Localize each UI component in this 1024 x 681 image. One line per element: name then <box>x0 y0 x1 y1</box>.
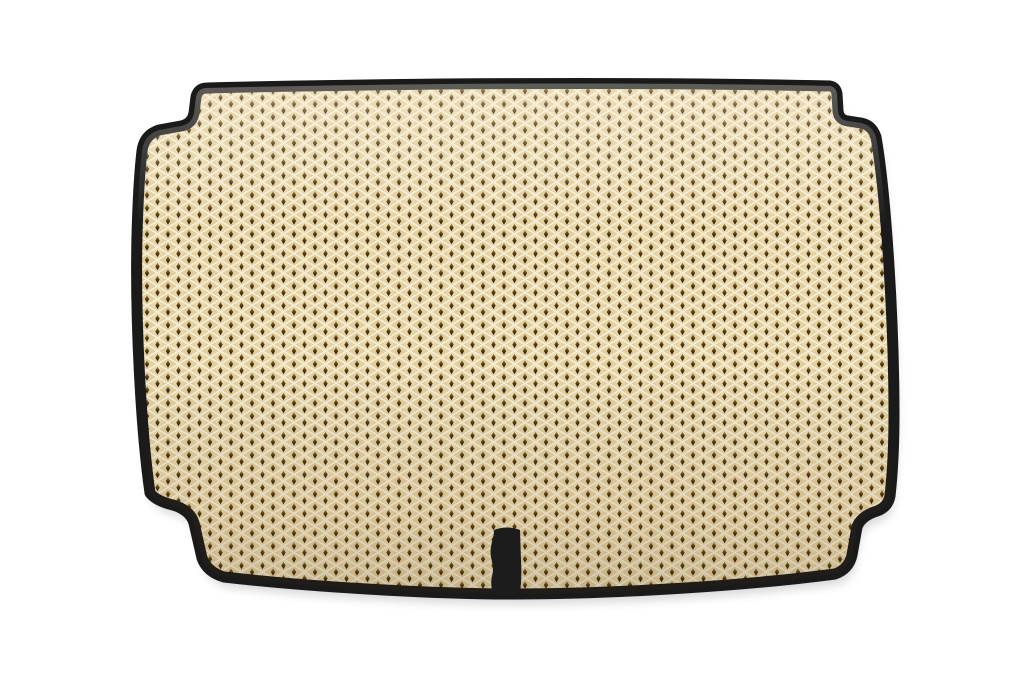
product-photo-canvas <box>0 0 1024 681</box>
lighting-overlay <box>137 84 894 594</box>
fastening-tab <box>491 528 522 594</box>
trunk-mat-product-image <box>0 0 1024 681</box>
